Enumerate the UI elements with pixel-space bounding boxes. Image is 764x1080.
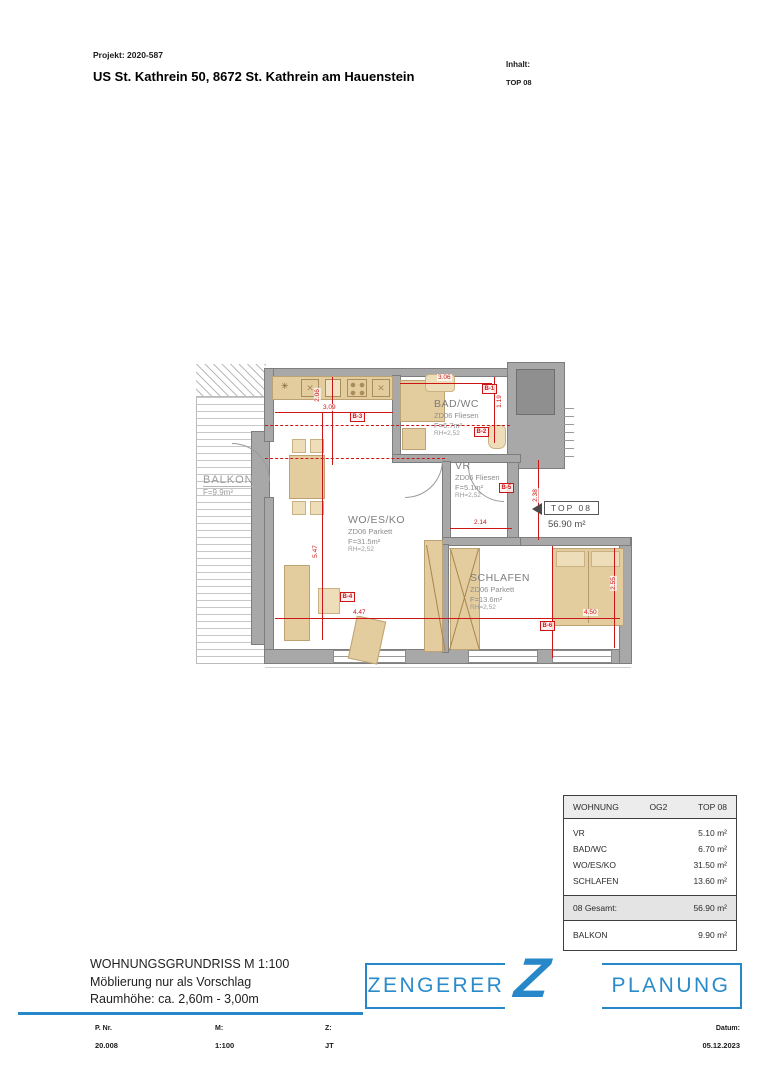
detail-marker: B-3 — [350, 412, 365, 422]
room-label-schlafen: SCHLAFEN ZD06 Parkett F=13.6m² RH=2,52 — [470, 572, 530, 612]
dining-table — [289, 455, 325, 499]
cabinet-diagonal — [426, 545, 446, 652]
dim-label: 2.14 — [473, 519, 488, 526]
z-value: JT — [325, 1041, 334, 1050]
wall-top — [265, 369, 515, 376]
datum-value: 05.12.2023 — [600, 1041, 740, 1050]
stair-treads — [564, 408, 574, 464]
dim-line — [400, 383, 492, 384]
window-corridor — [468, 650, 538, 663]
table-row: VR5.10 m² — [564, 825, 736, 841]
dim-line — [450, 528, 512, 529]
table-row: SCHLAFEN13.60 m² — [564, 873, 736, 889]
detail-marker: B-1 — [482, 384, 497, 394]
detail-marker: B-5 — [499, 483, 514, 493]
dim-label: 5.47 — [312, 544, 319, 559]
wall-vr-bottom — [443, 538, 520, 545]
dim-label: 3.06 — [437, 374, 452, 381]
cooktop-icon — [347, 379, 367, 397]
area-table-header: WOHNUNG OG2 TOP 08 — [564, 796, 736, 819]
table-col-wohnung: WOHNUNG — [573, 802, 619, 812]
drawing-note-1: Möblierung nur als Vorschlag — [90, 974, 289, 992]
dim-label: 2.38 — [532, 488, 539, 503]
pillow — [591, 551, 620, 567]
table-row: BAD/WC6.70 m² — [564, 841, 736, 857]
title-block: WOHNUNGSGRUNDRISS M 1:100 Möblierung nur… — [90, 956, 289, 1009]
wall-vr-left — [443, 462, 450, 544]
detail-marker: B-6 — [540, 621, 555, 631]
logo-right-box: PLANUNG — [602, 963, 742, 1009]
sill-line — [265, 667, 631, 668]
room-label-badwc: BAD/WC ZD06 Fliesen F=6.7m² RH=2,52 — [434, 398, 479, 438]
logo-z-icon: Z — [512, 950, 552, 1006]
window-schlafen — [552, 650, 612, 663]
chair — [292, 439, 306, 453]
shaft-core — [517, 370, 554, 414]
datum-label: Datum: — [600, 1025, 740, 1032]
z-label: Z: — [325, 1025, 332, 1032]
detail-marker: B-4 — [340, 592, 355, 602]
room-label-vr: VR ZD06 Fliesen F=5.1m² RH=2,52 — [455, 460, 500, 500]
wall-left-lower — [265, 498, 273, 656]
area-table-rooms: VR5.10 m² BAD/WC6.70 m² WO/ES/KO31.50 m²… — [564, 819, 736, 895]
dim-line — [332, 377, 333, 465]
table-total-row: 08 Gesamt:56.90 m² — [564, 895, 736, 921]
room-label-woesko: WO/ES/KO ZD06 Parkett F=31.5m² RH=2,52 — [348, 514, 405, 554]
area-table: WOHNUNG OG2 TOP 08 VR5.10 m² BAD/WC6.70 … — [563, 795, 737, 951]
dim-label: 2.55 — [610, 576, 617, 591]
dim-line — [275, 618, 620, 619]
m-label: M: — [215, 1025, 223, 1032]
tall-cabinet — [424, 540, 443, 652]
table-col-top08: TOP 08 — [698, 802, 727, 812]
cabinet-icon: ✕ — [372, 379, 390, 397]
company-logo: ZENGERER Z PLANUNG — [365, 950, 743, 1016]
section-dash-line — [265, 458, 445, 459]
balkon-area: F=9.9m² — [203, 488, 254, 497]
drawing-title: WOHNUNGSGRUNDRISS M 1:100 — [90, 956, 289, 974]
table-col-og2: OG2 — [649, 802, 667, 812]
pillow — [556, 551, 585, 567]
wall-vr-right — [508, 455, 518, 545]
wall-schlafen-top — [520, 538, 630, 545]
wc — [488, 425, 506, 449]
chair — [292, 501, 306, 515]
dim-label: 2.06 — [314, 388, 321, 403]
oven-icon — [325, 379, 341, 397]
washing-machine — [402, 428, 426, 450]
top-flag-arrow-icon — [532, 503, 542, 515]
wall-bad-left — [393, 376, 400, 462]
dim-line — [275, 412, 393, 413]
drawing-note-2: Raumhöhe: ca. 2,60m - 3,00m — [90, 991, 289, 1009]
table-balkon-row: BALKON9.90 m² — [564, 921, 736, 950]
top-flag-area: 56.90 m² — [548, 519, 586, 530]
roof-hatch — [196, 364, 266, 398]
dim-line — [322, 412, 323, 640]
dim-label: 4.47 — [352, 609, 367, 616]
table-row: WO/ES/KO31.50 m² — [564, 857, 736, 873]
kitchen-symbol-icon: ✳ — [281, 381, 289, 392]
m-value: 1:100 — [215, 1041, 234, 1050]
footer-rule — [18, 1012, 363, 1015]
top-flag-label: TOP 08 — [544, 501, 599, 515]
dim-line — [552, 546, 553, 658]
pnr-label: P. Nr. — [95, 1025, 112, 1032]
pnr-value: 20.008 — [95, 1041, 118, 1050]
sofa — [284, 565, 310, 641]
floor-plan: BALKON F=9.9m² ✳ ✕ ✕ — [0, 0, 764, 764]
logo-left-box: ZENGERER — [365, 963, 505, 1009]
dim-label: 4.50 — [583, 609, 598, 616]
dim-label: 3.09 — [322, 404, 337, 411]
dim-line — [614, 548, 615, 648]
dim-label: 1.19 — [496, 394, 503, 409]
